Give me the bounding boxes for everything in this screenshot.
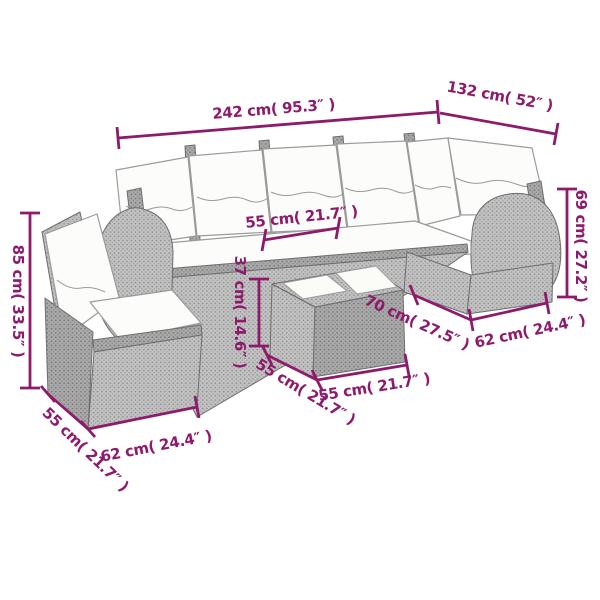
dim-table-front-width-label: 55 cm( 21.7″ ): [317, 369, 431, 404]
dimension-diagram: 242 cm( 95.3″ ) 132 cm( 52″ ) 69 cm( 27.…: [0, 0, 600, 600]
dim-left-module-width-label: 62 cm( 24.4″ ): [99, 426, 213, 465]
coffee-table: [270, 266, 405, 377]
dim-backrest-height-label: 85 cm( 33.5″ ): [9, 245, 27, 358]
dim-table-height-label: 37 cm( 14.6″ ): [231, 256, 249, 369]
sofa-set-illustration: 242 cm( 95.3″ ) 132 cm( 52″ ) 69 cm( 27.…: [0, 0, 600, 600]
dim-armrest-height-label: 69 cm( 27.2″ ): [572, 190, 590, 303]
dim-overall-width-label: 242 cm( 95.3″ ): [212, 95, 336, 123]
dim-corner-width-label: 132 cm( 52″ ): [445, 77, 554, 114]
